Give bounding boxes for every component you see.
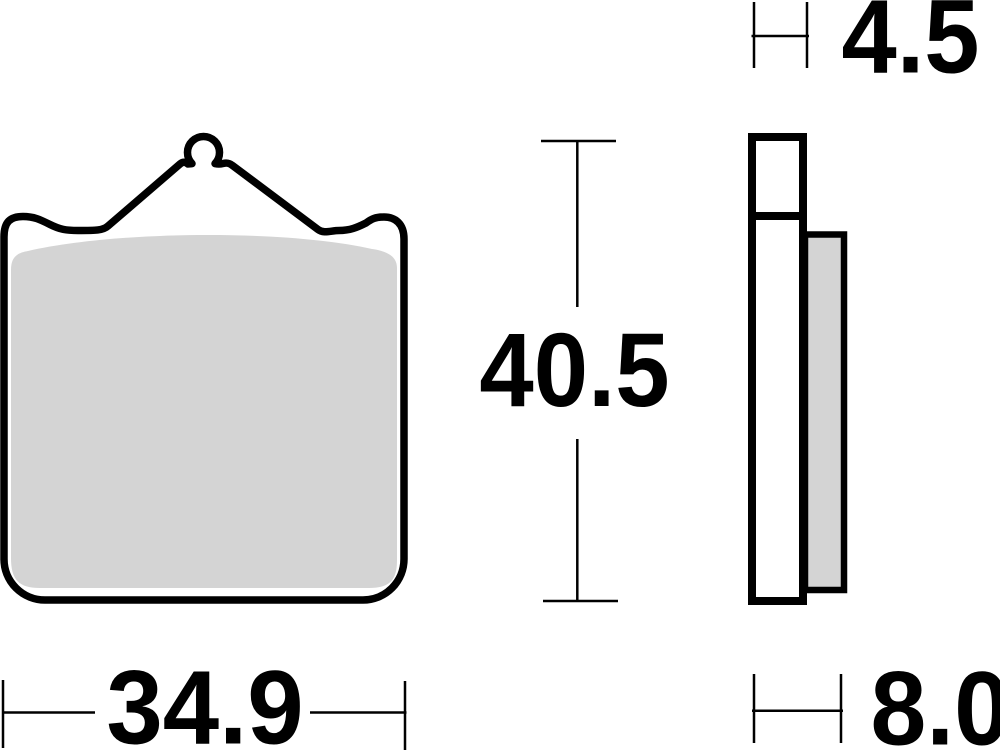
svg-text:34.9: 34.9 <box>106 649 303 751</box>
svg-text:8.0: 8.0 <box>871 650 1000 751</box>
svg-text:4.5: 4.5 <box>842 0 980 95</box>
svg-text:40.5: 40.5 <box>479 312 669 429</box>
